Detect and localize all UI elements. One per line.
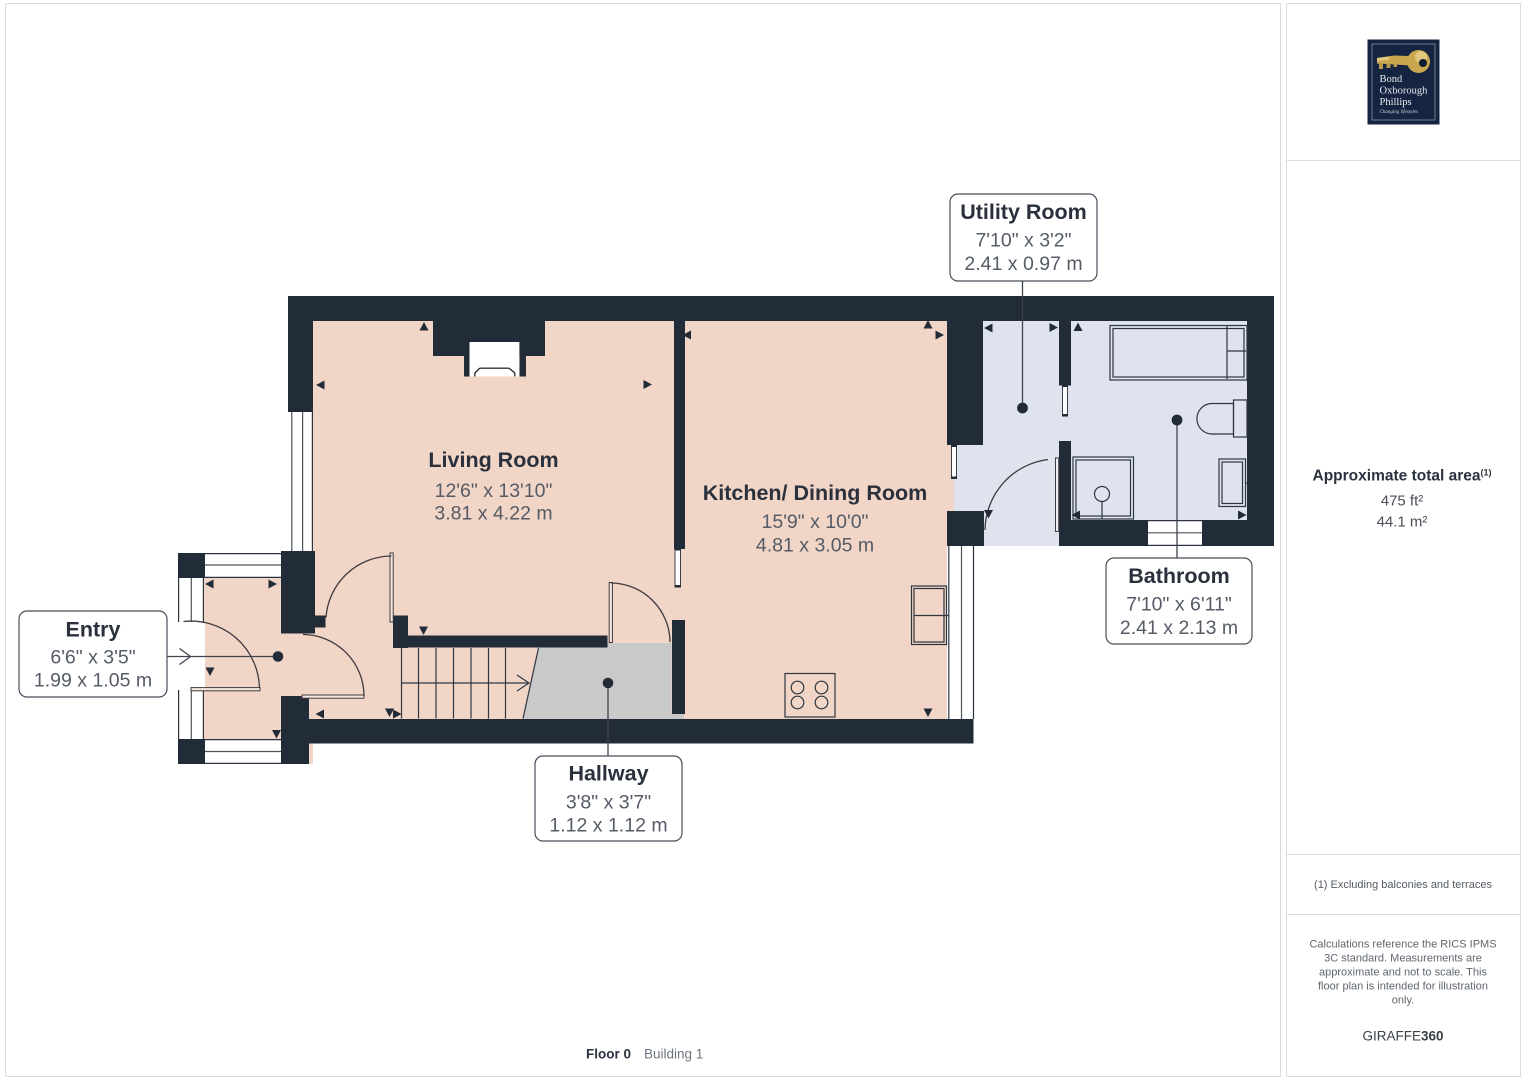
svg-text:2.41 x 0.97 m: 2.41 x 0.97 m [964, 253, 1082, 275]
svg-text:Living Room: Living Room [428, 448, 558, 472]
svg-text:only.: only. [1392, 995, 1414, 1007]
svg-text:3.81 x 4.22 m: 3.81 x 4.22 m [434, 503, 552, 525]
svg-text:Bathroom: Bathroom [1128, 564, 1230, 588]
svg-text:floor plan is intended for ill: floor plan is intended for illustration [1318, 981, 1488, 993]
svg-text:4.81 x 3.05 m: 4.81 x 3.05 m [756, 535, 874, 557]
svg-text:2.41 x 2.13 m: 2.41 x 2.13 m [1120, 617, 1238, 639]
svg-text:7'10" x 3'2": 7'10" x 3'2" [975, 230, 1071, 252]
svg-text:Bond: Bond [1380, 74, 1404, 85]
svg-text:Hallway: Hallway [568, 762, 648, 786]
svg-text:(1) Excluding balconies and te: (1) Excluding balconies and terraces [1314, 879, 1492, 891]
svg-text:44.1 m²: 44.1 m² [1377, 514, 1428, 531]
svg-text:Building 1: Building 1 [644, 1047, 703, 1062]
svg-text:475 ft²: 475 ft² [1381, 493, 1424, 510]
svg-text:Calculations reference the RIC: Calculations reference the RICS IPMS [1309, 939, 1496, 951]
svg-text:3C standard. Measurements are: 3C standard. Measurements are [1324, 953, 1482, 965]
svg-text:15'9" x 10'0": 15'9" x 10'0" [762, 511, 869, 533]
svg-text:Kitchen/ Dining Room: Kitchen/ Dining Room [703, 481, 928, 505]
svg-text:7'10" x 6'11": 7'10" x 6'11" [1126, 594, 1232, 616]
svg-text:1.12 x 1.12 m: 1.12 x 1.12 m [549, 815, 667, 837]
svg-text:Entry: Entry [66, 618, 121, 642]
svg-text:12'6" x 13'10": 12'6" x 13'10" [435, 480, 553, 502]
svg-text:1.99 x 1.05 m: 1.99 x 1.05 m [34, 670, 152, 692]
svg-text:approximate and not to scale.: approximate and not to scale. This [1319, 967, 1487, 979]
svg-text:3'8" x 3'7": 3'8" x 3'7" [566, 792, 651, 814]
svg-text:Utility Room: Utility Room [960, 200, 1087, 224]
svg-text:Phillips: Phillips [1380, 97, 1412, 108]
svg-text:Approximate total area(1): Approximate total area(1) [1313, 468, 1492, 485]
svg-text:GIRAFFE360: GIRAFFE360 [1362, 1029, 1443, 1044]
svg-text:6'6" x 3'5": 6'6" x 3'5" [50, 647, 135, 669]
svg-text:Changing lifestyles: Changing lifestyles [1380, 110, 1419, 115]
svg-text:Floor 0: Floor 0 [586, 1047, 631, 1062]
svg-text:Oxborough: Oxborough [1380, 86, 1429, 97]
